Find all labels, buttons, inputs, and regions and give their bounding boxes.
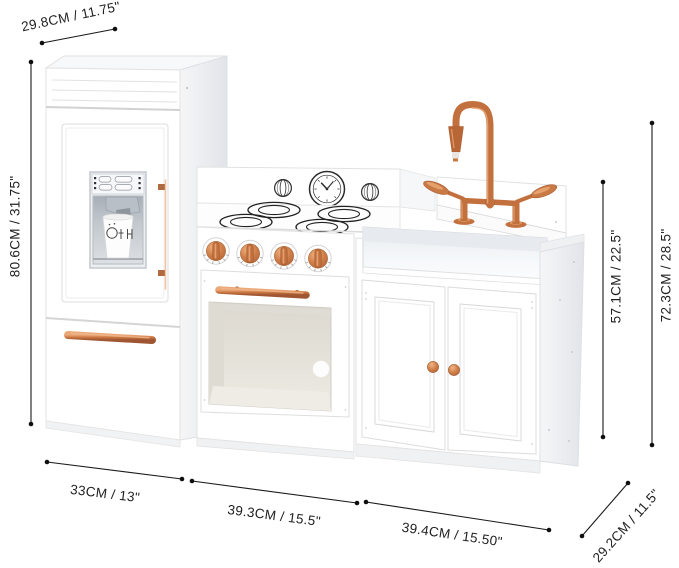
sink-side-panel [540, 242, 584, 466]
backsplash-deco-circle-left [275, 180, 292, 197]
sink-unit [356, 105, 584, 474]
stove-knob-4 [305, 245, 331, 271]
product-dimension-diagram: 29.8CM / 11.75" 80.6CM / 31.75" 57.1CM /… [0, 0, 679, 568]
cabinet-knob-left [427, 361, 438, 372]
oven-window-hole [313, 361, 329, 377]
stove-knob-2 [237, 240, 263, 266]
dim-label-left-height: 80.6CM / 31.75" [9, 161, 24, 291]
dim-line-left-height [29, 60, 34, 427]
dispenser-cup [103, 214, 133, 258]
backsplash-deco-circle-right [362, 184, 379, 201]
cabinet-knob-right [448, 364, 459, 375]
dim-line-fridge-width [45, 460, 185, 482]
cabinet-doors [362, 280, 536, 454]
stove-knob-3 [271, 243, 297, 269]
dim-line-total-height [650, 121, 655, 448]
dim-line-counter-height [601, 180, 606, 440]
dispenser-control-panel [92, 174, 144, 194]
oven-door [201, 270, 349, 417]
faucet-sprayer-head [449, 127, 464, 162]
dim-label-counter-height: 57.1CM / 22.5" [610, 216, 625, 336]
dim-label-total-height: 72.3CM / 28.5" [660, 215, 675, 335]
fridge-side-screw [186, 87, 188, 89]
stove-knob-1 [203, 238, 229, 264]
kitchen-illustration [0, 0, 679, 568]
ice-dispenser [90, 172, 146, 268]
dim-line-top-depth [40, 27, 118, 46]
cabinet-door-right [448, 287, 536, 454]
backsplash-clock [310, 172, 345, 207]
oven-window [209, 302, 331, 411]
